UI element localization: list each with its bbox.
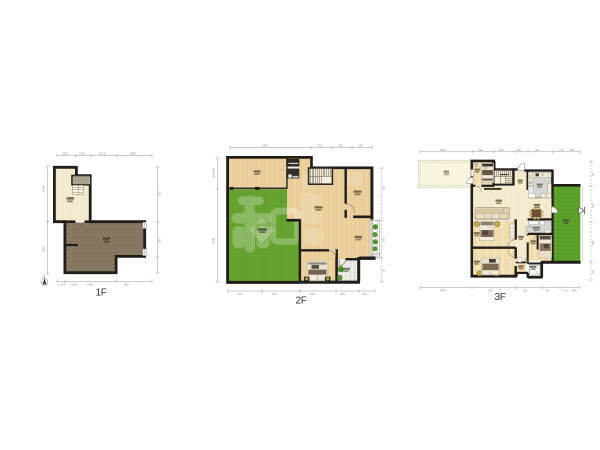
svg-text:347: 347 [535, 148, 540, 152]
svg-text:894: 894 [572, 288, 577, 292]
svg-text:193: 193 [340, 292, 345, 296]
svg-text:3900: 3900 [130, 152, 137, 156]
svg-text:3F: 3F [494, 292, 505, 303]
svg-text:190: 190 [358, 144, 363, 148]
svg-text:1.20: 1.20 [562, 288, 568, 292]
svg-text:9340: 9340 [212, 237, 216, 244]
svg-text:24: 24 [382, 268, 386, 272]
svg-text:1.107: 1.107 [58, 283, 65, 287]
svg-text:390: 390 [591, 240, 595, 245]
svg-text:2F: 2F [295, 295, 306, 306]
svg-text:6238: 6238 [42, 185, 46, 192]
svg-text:302: 302 [499, 148, 504, 152]
svg-text:228: 228 [338, 144, 343, 148]
svg-text:8787: 8787 [440, 148, 447, 152]
svg-text:845: 845 [263, 144, 268, 148]
svg-text:365: 365 [591, 203, 595, 208]
svg-text:894: 894 [570, 148, 575, 152]
svg-text:1.900: 1.900 [86, 283, 93, 287]
svg-text:302: 302 [523, 288, 528, 292]
svg-text:230: 230 [478, 148, 483, 152]
svg-text:334: 334 [272, 292, 277, 296]
svg-text:347: 347 [545, 288, 550, 292]
svg-text:18: 18 [591, 269, 595, 273]
svg-text:277: 277 [238, 292, 243, 296]
svg-text:N: N [43, 275, 45, 279]
svg-text:5850: 5850 [42, 245, 46, 252]
svg-text:625: 625 [158, 191, 162, 196]
svg-text:1662: 1662 [79, 152, 86, 156]
svg-text:390: 390 [158, 238, 162, 243]
svg-text:1.5107: 1.5107 [70, 283, 79, 287]
svg-text:25: 25 [591, 172, 595, 176]
svg-text:350: 350 [382, 237, 386, 242]
svg-text:902: 902 [124, 283, 129, 287]
svg-text:8787: 8787 [440, 288, 447, 292]
svg-text:387: 387 [517, 148, 522, 152]
svg-text:293: 293 [310, 292, 315, 296]
svg-text:3012: 3012 [99, 152, 106, 156]
svg-text:138: 138 [362, 292, 367, 296]
svg-text:1F: 1F [95, 288, 106, 299]
svg-text:365: 365 [382, 185, 386, 190]
svg-text:300/368: 300/368 [212, 167, 216, 178]
svg-text:1.20: 1.20 [558, 148, 564, 152]
svg-text:2550: 2550 [62, 152, 69, 156]
svg-text:230: 230 [488, 288, 493, 292]
svg-text:275: 275 [317, 144, 322, 148]
